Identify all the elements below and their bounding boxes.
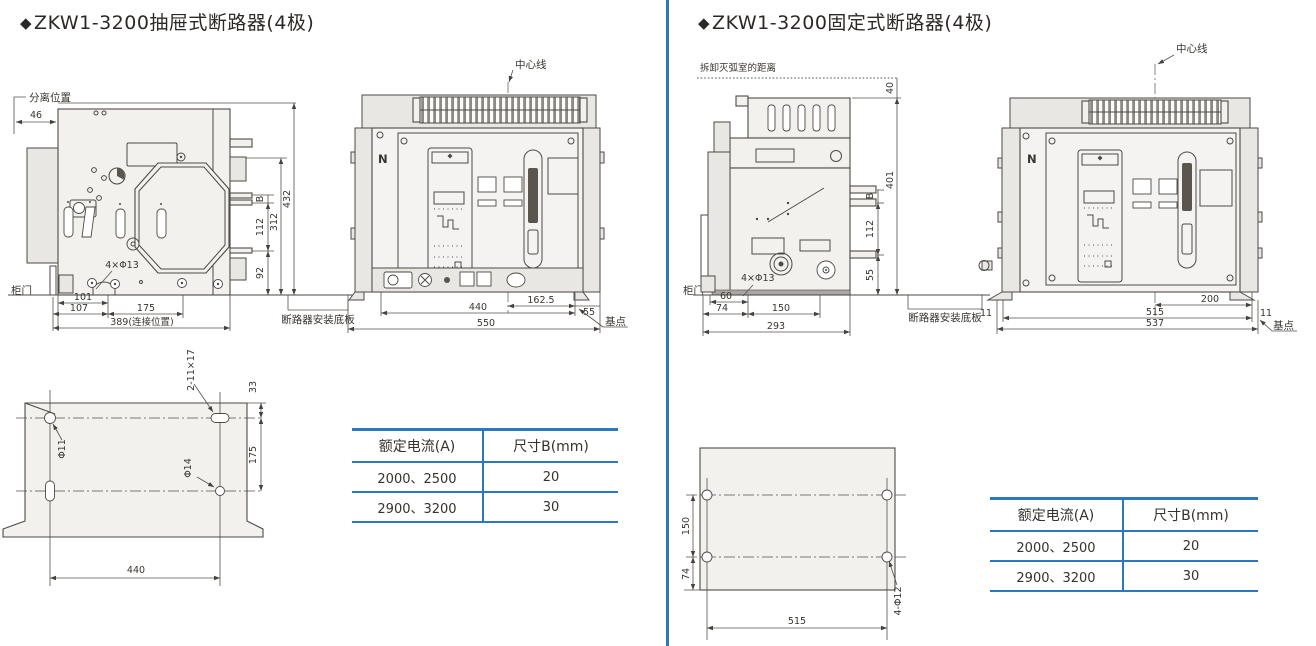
right-spec-table: 额定电流(A) 尺寸B(mm) 2000、2500 20 2900、3200 3… bbox=[990, 497, 1258, 592]
label-base-plate: 断路器安装底板 bbox=[908, 311, 982, 324]
left-front-view-drawing: 中心线 N bbox=[348, 58, 628, 333]
dim-label-40: 40 bbox=[885, 82, 896, 94]
hole-callout-dia11: Φ11 bbox=[57, 439, 68, 459]
cell-dimension-b: 20 bbox=[483, 462, 618, 492]
dim-label-B: B bbox=[865, 193, 876, 200]
label-neutral-pole: N bbox=[378, 152, 388, 166]
dim-label-11-right: 11 bbox=[1260, 308, 1272, 319]
left-side-view-drawing: 分离位置 46 bbox=[8, 91, 355, 331]
dim-label-515-plate: 515 bbox=[788, 616, 806, 627]
label-arc-chute-distance: 拆卸灭弧室的距离 bbox=[700, 62, 776, 74]
dim-label-150-plate: 150 bbox=[681, 517, 692, 535]
label-separation-position: 分离位置 bbox=[29, 91, 71, 104]
hole-callout-4x13: 4×Φ13 bbox=[741, 273, 775, 284]
cell-dimension-b: 30 bbox=[483, 492, 618, 522]
dim-label-46: 46 bbox=[30, 110, 42, 121]
dim-label-B: B bbox=[255, 196, 266, 203]
right-mounting-plate-drawing: 150 74 515 4-Φ12 bbox=[681, 448, 906, 640]
dim-label-74-plate: 74 bbox=[681, 568, 692, 580]
dim-label-60: 60 bbox=[720, 291, 732, 302]
hole-callout-dia14: Φ14 bbox=[183, 458, 194, 478]
dim-label-107: 107 bbox=[70, 303, 88, 314]
dim-label-432: 432 bbox=[282, 190, 293, 208]
dim-label-175: 175 bbox=[137, 303, 155, 314]
hole-callout-4x13: 4×Φ13 bbox=[105, 260, 139, 271]
dim-label-440: 440 bbox=[469, 302, 487, 313]
dim-label-112: 112 bbox=[255, 218, 266, 236]
col-header-rated-current: 额定电流(A) bbox=[990, 499, 1123, 532]
col-header-rated-current: 额定电流(A) bbox=[352, 430, 483, 463]
hole-callout-4-dia12: 4-Φ12 bbox=[893, 586, 904, 615]
dim-label-200: 200 bbox=[1201, 294, 1219, 305]
dim-label-74: 74 bbox=[716, 303, 728, 314]
dim-label-150: 150 bbox=[772, 303, 790, 314]
dim-label-293: 293 bbox=[767, 321, 785, 332]
dim-label-389: 389(连接位置) bbox=[110, 316, 174, 328]
cell-current-range: 2000、2500 bbox=[352, 462, 483, 492]
dim-label-401: 401 bbox=[885, 171, 896, 189]
dim-label-11-left: 11 bbox=[980, 308, 992, 319]
table-row: 2000、2500 20 bbox=[352, 462, 618, 492]
table-row: 2900、3200 30 bbox=[990, 561, 1258, 591]
label-center-line: 中心线 bbox=[1176, 42, 1208, 55]
right-side-view-drawing: 拆卸灭弧室的距离 40 401 bbox=[683, 62, 990, 336]
catalog-page: ◆ZKW1-3200抽屉式断路器(4极) ◆ZKW1-3200固定式断路器(4极… bbox=[0, 0, 1316, 646]
left-drawings-canvas: 分离位置 46 bbox=[0, 0, 668, 646]
dim-label-537: 537 bbox=[1146, 318, 1164, 329]
dim-label-92: 92 bbox=[255, 267, 266, 279]
table-header-row: 额定电流(A) 尺寸B(mm) bbox=[352, 430, 618, 463]
dim-label-515: 515 bbox=[1146, 307, 1164, 318]
dim-label-440-plate: 440 bbox=[127, 565, 145, 576]
dim-label-550: 550 bbox=[477, 318, 495, 329]
table-header-row: 额定电流(A) 尺寸B(mm) bbox=[990, 499, 1258, 532]
col-header-dimension-b: 尺寸B(mm) bbox=[1123, 499, 1258, 532]
cell-dimension-b: 30 bbox=[1123, 561, 1258, 591]
cell-current-range: 2900、3200 bbox=[352, 492, 483, 522]
label-center-line: 中心线 bbox=[515, 58, 547, 71]
col-header-dimension-b: 尺寸B(mm) bbox=[483, 430, 618, 463]
left-mounting-plate-drawing: 2-11×17 33 175 Φ11 Φ14 440 bbox=[3, 349, 266, 586]
dim-label-162-5: 162.5 bbox=[527, 295, 554, 306]
dim-label-112: 112 bbox=[865, 220, 876, 238]
dim-label-55: 55 bbox=[865, 269, 876, 281]
label-base-plate: 断路器安装底板 bbox=[281, 313, 355, 326]
slot-callout-2-11x17: 2-11×17 bbox=[186, 349, 197, 391]
dim-label-175-plate: 175 bbox=[248, 446, 259, 464]
dim-label-101: 101 bbox=[74, 292, 92, 303]
label-base-point: 基点 bbox=[1273, 319, 1294, 332]
table-row: 2000、2500 20 bbox=[990, 531, 1258, 561]
dim-label-312: 312 bbox=[269, 213, 280, 231]
cell-dimension-b: 20 bbox=[1123, 531, 1258, 561]
right-front-view-drawing: 中心线 N bbox=[979, 42, 1297, 334]
left-spec-table: 额定电流(A) 尺寸B(mm) 2000、2500 20 2900、3200 3… bbox=[352, 428, 618, 523]
label-neutral-pole: N bbox=[1027, 152, 1037, 166]
cell-current-range: 2000、2500 bbox=[990, 531, 1123, 561]
table-row: 2900、3200 30 bbox=[352, 492, 618, 522]
dim-label-33: 33 bbox=[248, 381, 259, 393]
label-base-point: 基点 bbox=[605, 315, 626, 328]
cell-current-range: 2900、3200 bbox=[990, 561, 1123, 591]
